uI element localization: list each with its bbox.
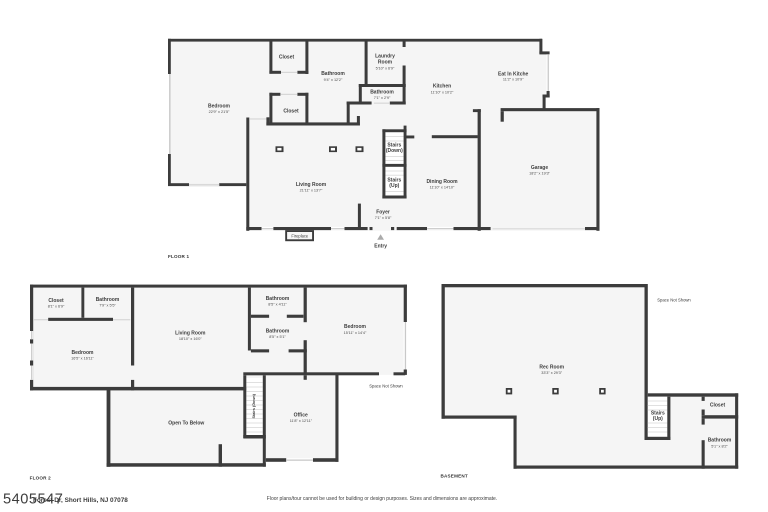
svg-text:Closet: Closet (279, 54, 295, 60)
svg-text:Bathroom: Bathroom (266, 329, 290, 335)
svg-text:Eat In Kitche: Eat In Kitche (498, 71, 529, 77)
svg-text:Fireplace: Fireplace (291, 234, 309, 239)
svg-text:5'10" x 6'9": 5'10" x 6'9" (376, 67, 395, 71)
svg-text:Bedroom: Bedroom (344, 324, 367, 330)
svg-text:9'4" x 12'2": 9'4" x 12'2" (324, 78, 343, 82)
svg-text:Living Room: Living Room (296, 182, 327, 188)
svg-text:7'1" x 5'8": 7'1" x 5'8" (375, 216, 392, 220)
svg-text:Open To Below: Open To Below (168, 420, 204, 426)
svg-text:Kitchen: Kitchen (433, 84, 451, 90)
svg-text:(Up): (Up) (389, 183, 399, 189)
svg-text:18'10" x 16'0": 18'10" x 16'0" (179, 337, 203, 341)
svg-text:33'3" x 29'3": 33'3" x 29'3" (541, 371, 562, 375)
svg-text:Rec Room: Rec Room (539, 364, 564, 370)
svg-text:Office: Office (294, 413, 308, 419)
svg-text:18'2" x 19'3": 18'2" x 19'3" (529, 171, 550, 175)
svg-text:Living Room: Living Room (175, 331, 206, 337)
svg-text:Closet: Closet (48, 298, 64, 304)
svg-text:21'11" x 13'7": 21'11" x 13'7" (300, 189, 323, 193)
svg-text:Dining Room: Dining Room (426, 179, 458, 185)
svg-text:(Up): (Up) (653, 416, 663, 422)
svg-text:8'5" x 4'11": 8'5" x 4'11" (268, 303, 287, 307)
svg-text:Bathroom: Bathroom (708, 438, 732, 444)
svg-text:Bedroom: Bedroom (72, 350, 95, 356)
svg-text:15'11" x 14'4": 15'11" x 14'4" (344, 331, 367, 335)
svg-text:Forest Dr, Short Hills, NJ 070: Forest Dr, Short Hills, NJ 07078 (33, 497, 128, 504)
svg-text:8'5" x 5'1": 8'5" x 5'1" (269, 335, 286, 339)
svg-text:Foyer: Foyer (376, 210, 390, 216)
svg-text:Bathroom: Bathroom (370, 90, 394, 96)
svg-text:11'10" x 10'2": 11'10" x 10'2" (431, 91, 454, 95)
svg-text:Floor plans/tour cannot be use: Floor plans/tour cannot be used for buil… (267, 496, 497, 502)
svg-text:Garage: Garage (531, 165, 548, 171)
svg-text:22'9" x 21'5": 22'9" x 21'5" (209, 110, 230, 114)
svg-text:8'1" x 6'9": 8'1" x 6'9" (48, 304, 65, 308)
svg-text:Bathroom: Bathroom (96, 297, 120, 303)
svg-text:BASEMENT: BASEMENT (441, 474, 468, 479)
svg-text:Space Not Shown: Space Not Shown (657, 298, 691, 303)
svg-text:Entry: Entry (374, 243, 387, 249)
svg-text:FLOOR 1: FLOOR 1 (168, 254, 190, 259)
svg-text:(Down): (Down) (386, 148, 403, 154)
svg-text:11'10" x 14'10": 11'10" x 14'10" (430, 185, 455, 189)
svg-text:Bedroom: Bedroom (208, 103, 231, 109)
svg-text:Bathroom: Bathroom (321, 71, 345, 77)
svg-text:Room: Room (378, 60, 393, 66)
svg-text:11'2" x 10'9": 11'2" x 10'9" (503, 77, 524, 81)
svg-text:Closet: Closet (283, 108, 299, 114)
svg-text:16'5" x 16'11": 16'5" x 16'11" (71, 356, 94, 360)
svg-text:Space Not Shown: Space Not Shown (369, 384, 403, 389)
svg-text:11'8" x 12'11": 11'8" x 12'11" (290, 419, 313, 423)
svg-text:7'1" x 2'9": 7'1" x 2'9" (374, 96, 391, 100)
svg-text:7'9" x 5'5": 7'9" x 5'5" (99, 304, 116, 308)
svg-text:Stairs (Down): Stairs (Down) (252, 393, 256, 418)
svg-text:Bathroom: Bathroom (266, 296, 290, 302)
svg-text:FLOOR 2: FLOOR 2 (30, 476, 52, 481)
svg-text:5'1" x 8'2": 5'1" x 8'2" (711, 445, 728, 449)
svg-text:Closet: Closet (710, 403, 726, 409)
